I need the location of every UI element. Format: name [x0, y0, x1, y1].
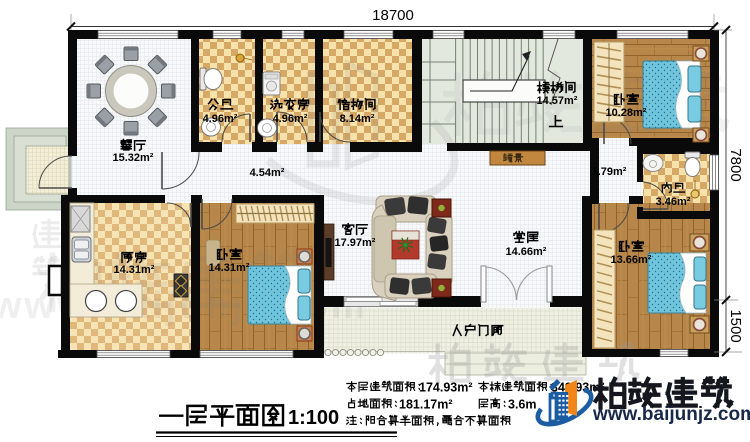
- svg-text:4.96m²: 4.96m²: [203, 113, 238, 125]
- svg-text:14.57m²: 14.57m²: [537, 95, 578, 107]
- svg-text:14.31m²: 14.31m²: [114, 264, 155, 276]
- svg-text:7800: 7800: [727, 148, 744, 181]
- svg-text:4.54m²: 4.54m²: [250, 167, 285, 179]
- svg-text:14.31m²: 14.31m²: [209, 262, 250, 274]
- svg-text:15.32m²: 15.32m²: [113, 152, 154, 164]
- svg-text:17.97m²: 17.97m²: [335, 237, 376, 249]
- svg-text:1500: 1500: [727, 309, 744, 342]
- svg-text:1:100: 1:100: [288, 407, 339, 429]
- svg-text:13.66m²: 13.66m²: [611, 254, 652, 266]
- svg-text:174.93m²: 174.93m²: [419, 381, 473, 395]
- svg-text:3.6m: 3.6m: [508, 398, 537, 412]
- svg-text:14.66m²: 14.66m²: [506, 246, 547, 258]
- svg-text:1.79m²: 1.79m²: [592, 166, 627, 178]
- svg-text:3.46m²: 3.46m²: [656, 196, 691, 208]
- svg-text:181.17m²: 181.17m²: [399, 398, 453, 412]
- svg-text:10.28m²: 10.28m²: [606, 107, 647, 119]
- svg-text:www.baijunjz.com: www.baijunjz.com: [592, 404, 750, 425]
- svg-text:8.14m²: 8.14m²: [340, 113, 375, 125]
- svg-text:4.96m²: 4.96m²: [273, 113, 308, 125]
- svg-text:18700: 18700: [372, 7, 414, 24]
